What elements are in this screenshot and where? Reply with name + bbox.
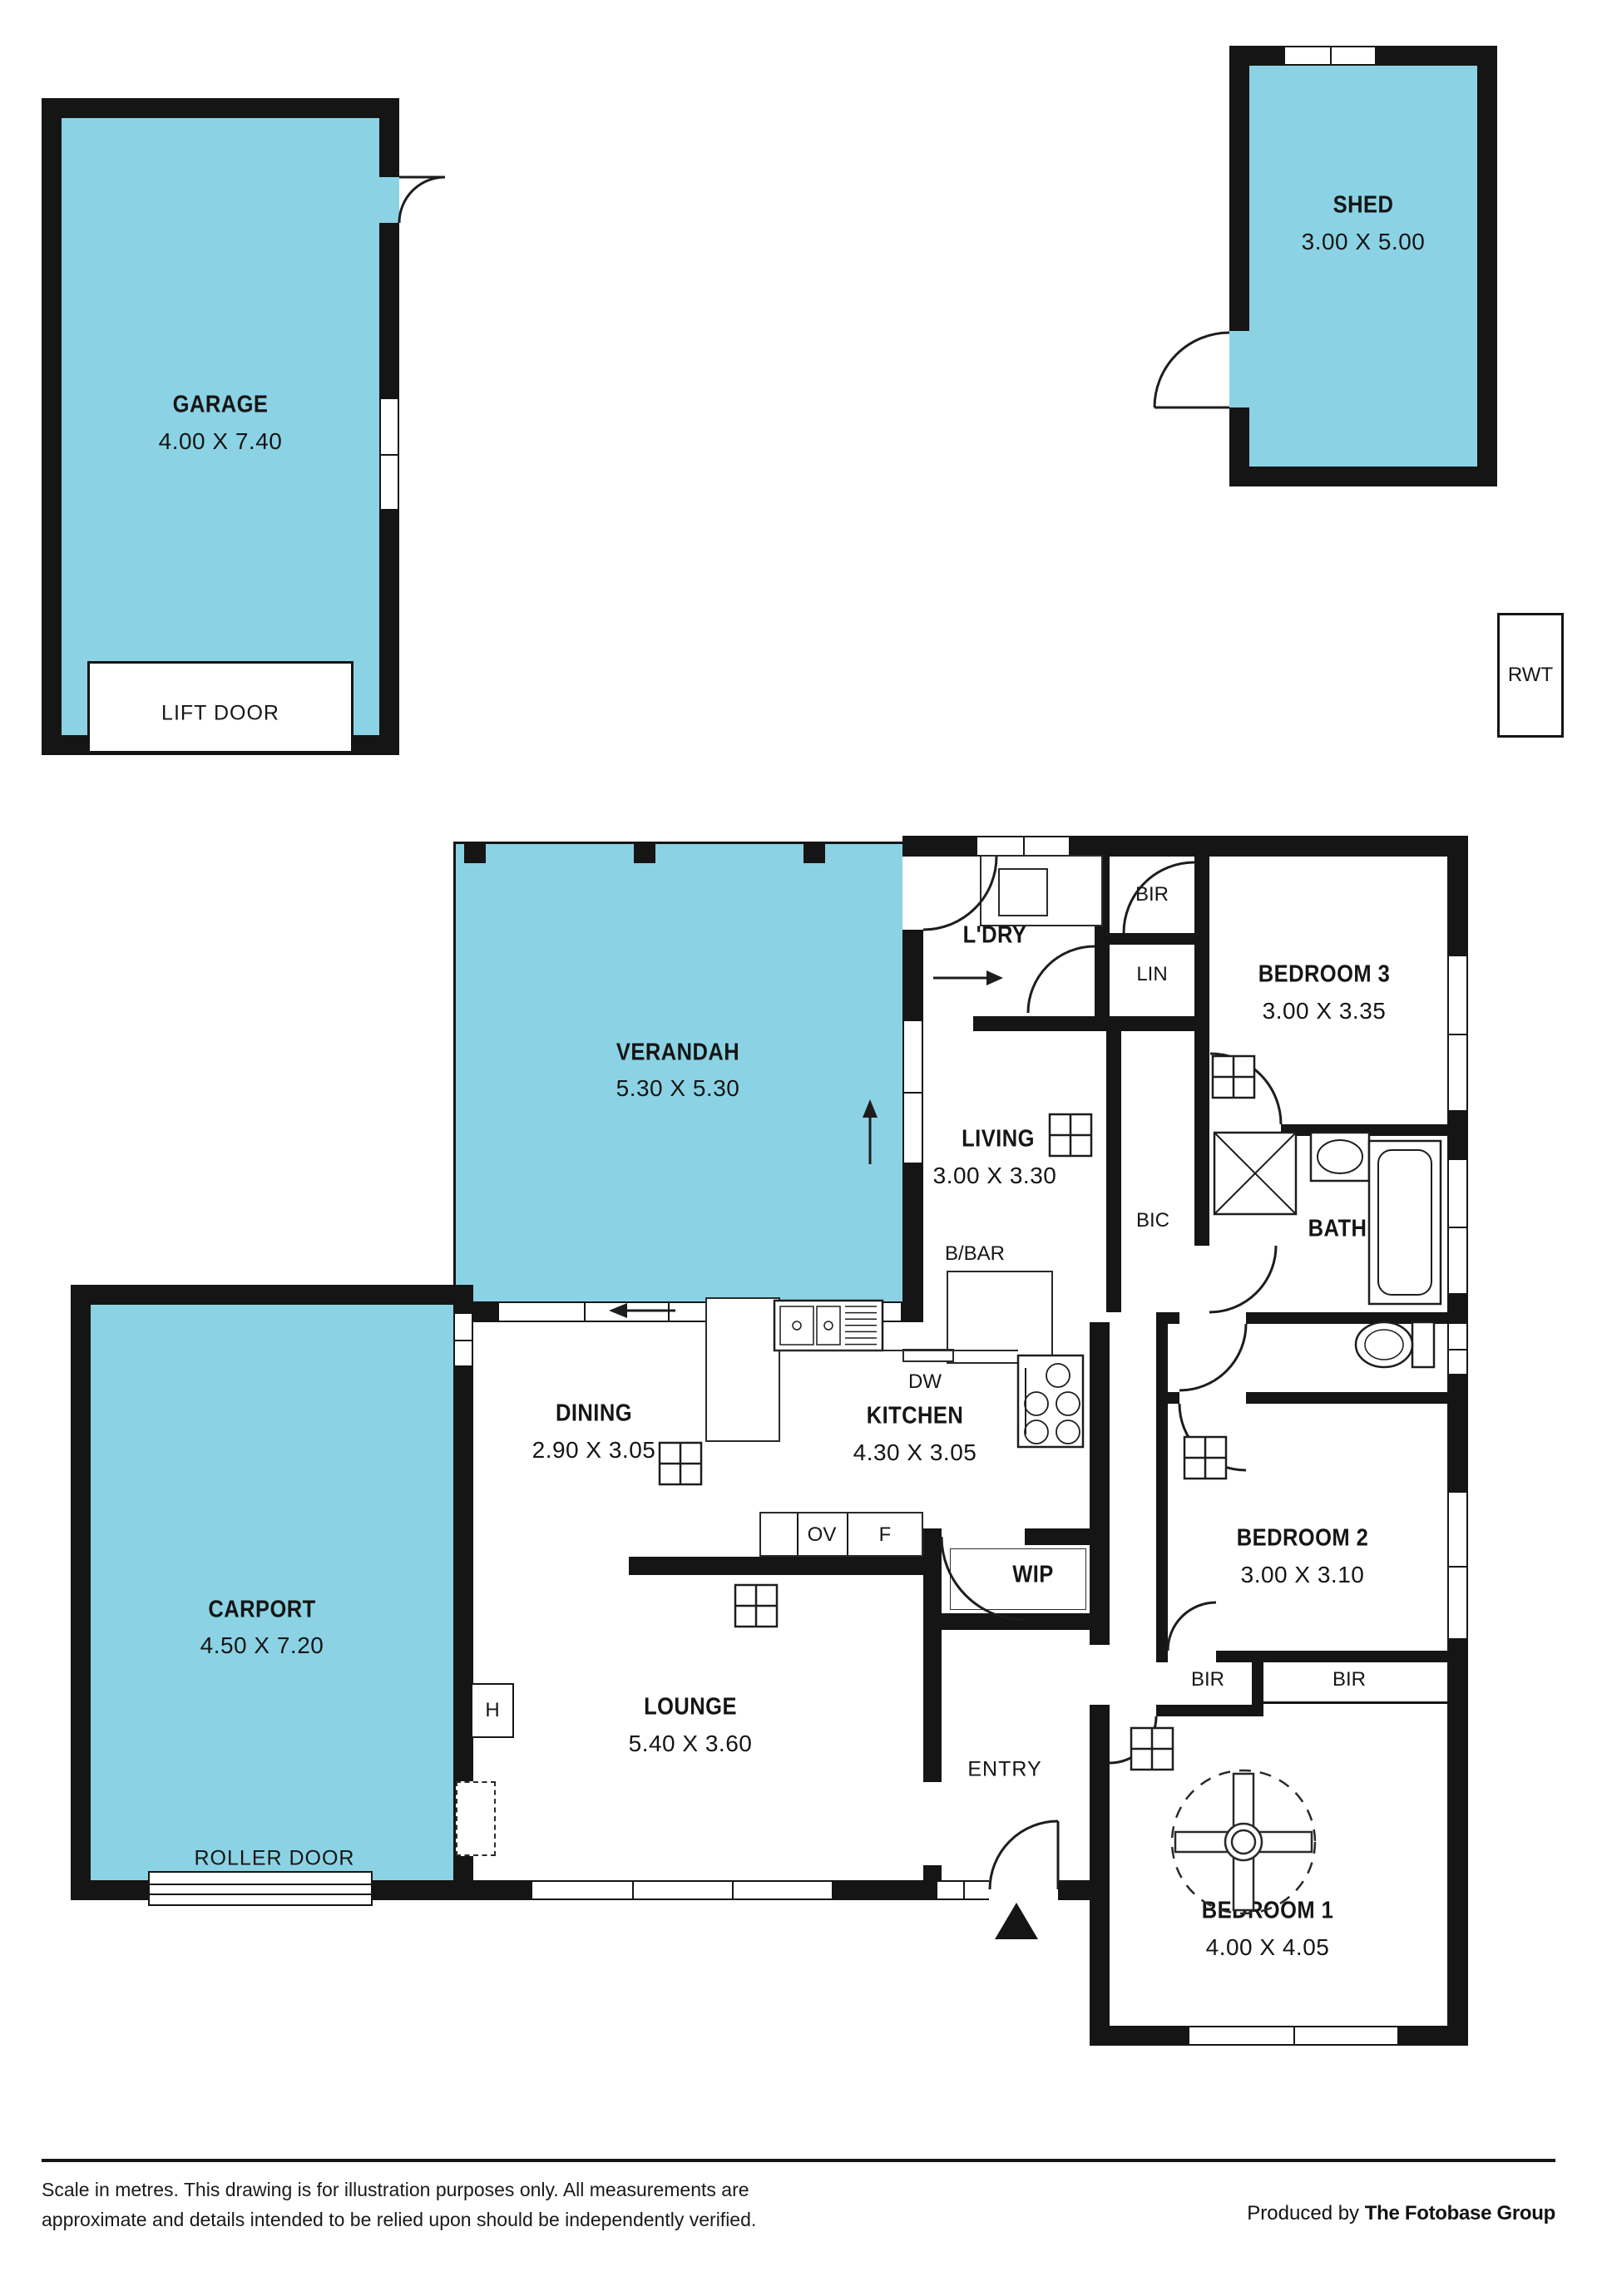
basin-icon: [1311, 1133, 1369, 1181]
garage-label: GARAGE: [173, 392, 269, 419]
wip-label: WIP: [1012, 1562, 1054, 1589]
heater-label: H: [485, 1699, 499, 1722]
bedroom3-door-arc: [1210, 1054, 1281, 1124]
window-mullion: [584, 1303, 586, 1321]
wall: [1477, 46, 1497, 486]
wall: [1106, 1031, 1121, 1312]
bir-right-label: BIR: [1332, 1668, 1366, 1691]
window-mullion: [1449, 1566, 1466, 1568]
wall: [923, 1528, 942, 1545]
wall: [973, 1016, 1110, 1031]
window: [379, 399, 399, 509]
wall: [1246, 1312, 1447, 1324]
shed-label: SHED: [1333, 192, 1394, 220]
wall: [1090, 1322, 1110, 1645]
window-mullion: [1330, 47, 1332, 64]
disclaimer-line1: Scale in metres. This drawing is for ill…: [42, 2179, 749, 2201]
bedroom3-vent-icon: [1213, 1056, 1254, 1098]
window: [532, 1880, 832, 1900]
wall: [1229, 46, 1249, 331]
wall: [1194, 857, 1209, 1246]
window: [1189, 2026, 1397, 2046]
garage-dims: 4.00 X 7.40: [159, 428, 283, 455]
window: [797, 1301, 901, 1322]
dining-label: DINING: [556, 1400, 632, 1428]
bic-label: BIC: [1136, 1209, 1169, 1232]
front-door-arc: [990, 1821, 1058, 1889]
dining-dims: 2.90 X 3.05: [532, 1437, 656, 1464]
kitchen-label: KITCHEN: [867, 1403, 964, 1430]
window-mullion: [904, 1092, 922, 1094]
wall: [379, 509, 399, 755]
wall: [71, 1880, 148, 1900]
window-mullion: [632, 1882, 634, 1899]
bedroom2-label: BEDROOM 2: [1237, 1525, 1369, 1553]
wall: [902, 842, 923, 857]
roller-door-panel: [148, 1871, 373, 1906]
fireplace-niche: [456, 1781, 496, 1856]
window: [937, 1880, 989, 1900]
cooktop-icon: [1018, 1355, 1083, 1447]
window-mullion: [455, 1340, 472, 1341]
fridge-label: F: [879, 1523, 892, 1547]
kitchen-dims: 4.30 X 3.05: [853, 1439, 977, 1466]
verandah-edge-top: [453, 842, 904, 844]
wall: [42, 98, 399, 118]
lift-door-label: LIFT DOOR: [161, 702, 279, 726]
oven-label: OV: [808, 1523, 837, 1547]
verandah-post: [634, 842, 655, 863]
laundry-direction-arrow-head: [986, 970, 1003, 985]
wall: [923, 1630, 942, 1782]
producer-credit: Produced by The Fotobase Group: [1247, 2202, 1555, 2225]
linen-door-arc: [1028, 946, 1095, 1013]
window: [453, 1314, 473, 1365]
living-label: LIVING: [962, 1126, 1035, 1153]
window: [1447, 1493, 1468, 1638]
ceiling-fan-icon: [1172, 1770, 1315, 1913]
garage-area: [42, 98, 399, 755]
wall: [629, 1557, 923, 1575]
carport-label: CARPORT: [208, 1597, 315, 1624]
verandah-dims: 5.30 X 5.30: [616, 1075, 740, 1102]
wall: [1156, 1651, 1168, 1662]
wall: [71, 1285, 473, 1305]
bir-left-label: BIR: [1191, 1668, 1224, 1691]
bir-front-line: [1263, 1701, 1447, 1704]
window: [1447, 956, 1468, 1110]
wall: [71, 1285, 91, 1900]
wall: [1156, 1312, 1168, 1651]
window-mullion: [1449, 1034, 1466, 1035]
bathtub-icon: [1369, 1141, 1441, 1304]
entry-marker: [995, 1903, 1038, 1939]
wall: [901, 1301, 923, 1322]
wall: [902, 930, 923, 1021]
window: [1447, 1160, 1468, 1293]
window-mullion: [732, 1882, 734, 1899]
dining-vent-icon: [660, 1443, 701, 1484]
carport-area: [71, 1285, 453, 1900]
dining-bench: [705, 1297, 780, 1442]
living-dims: 3.00 X 3.30: [933, 1163, 1057, 1189]
verandah-label: VERANDAH: [616, 1039, 739, 1067]
wall: [1246, 1392, 1447, 1404]
bedroom1-dims: 4.00 X 4.05: [1206, 1934, 1330, 1961]
roller-door-slat-line: [150, 1884, 371, 1885]
carport-dims: 4.50 X 7.20: [200, 1632, 324, 1659]
appliance-cabinets: [759, 1512, 923, 1557]
wall: [1229, 407, 1249, 486]
wall: [379, 98, 399, 177]
floor-plan: GARAGE4.00 X 7.40LIFT DOORSHED3.00 X 5.0…: [0, 0, 1597, 2296]
bedroom1-vent-icon: [1131, 1728, 1173, 1770]
wall: [902, 1163, 923, 1301]
dishwasher: [902, 1349, 954, 1362]
shed-dims: 3.00 X 5.00: [1302, 229, 1426, 255]
wall: [1281, 1124, 1447, 1136]
living-vent-icon: [1050, 1114, 1091, 1156]
wall: [1110, 933, 1194, 945]
bath-door-arc: [1209, 1246, 1276, 1312]
wall: [923, 1865, 942, 1880]
credit-prefix: Produced by: [1247, 2202, 1364, 2224]
lounge-label: LOUNGE: [644, 1694, 737, 1721]
bedroom1-door-arc: [1110, 1716, 1156, 1763]
roller-door-label: ROLLER DOOR: [195, 1847, 355, 1871]
bedroom3-dims: 3.00 X 3.35: [1263, 998, 1387, 1025]
bir-closet-door-arc: [1168, 1602, 1216, 1651]
wall: [379, 223, 399, 399]
footer-divider: [42, 2159, 1555, 2162]
wall: [1156, 1705, 1263, 1716]
rwt-label: RWT: [1508, 664, 1553, 687]
lounge-dims: 5.40 X 3.60: [629, 1731, 753, 1757]
laundry-trough-bowl: [998, 868, 1048, 916]
window: [977, 836, 1069, 857]
window-mullion: [1293, 2027, 1295, 2044]
wall: [832, 1880, 937, 1900]
cabinet-divider-1: [797, 1513, 798, 1555]
verandah-edge-left: [453, 842, 456, 1303]
credit-brand: The Fotobase Group: [1365, 2202, 1555, 2224]
verandah-post: [803, 842, 825, 863]
shed-door-arc: [1154, 333, 1229, 407]
dishwasher-label: DW: [908, 1370, 942, 1394]
wall: [1397, 2026, 1468, 2046]
bath-label: BATH: [1308, 1216, 1367, 1243]
wall: [1216, 1651, 1447, 1662]
window: [1285, 46, 1375, 66]
wall: [1090, 1705, 1110, 2026]
verandah-area: [453, 842, 902, 1301]
wall: [923, 1613, 1110, 1630]
wall: [373, 1880, 473, 1900]
wall: [1090, 2026, 1189, 2046]
bir-top-label: BIR: [1135, 883, 1169, 906]
window-mullion: [1023, 837, 1025, 855]
bedroom2-dims: 3.00 X 3.10: [1241, 1562, 1365, 1588]
wall: [1110, 1016, 1194, 1031]
window-mullion: [963, 1882, 965, 1899]
shed-area: [1229, 46, 1497, 486]
bedroom2-vent-icon: [1184, 1437, 1226, 1479]
shower-icon: [1214, 1133, 1296, 1214]
window-mullion: [1449, 1349, 1466, 1350]
bedroom1-label: BEDROOM 1: [1202, 1898, 1334, 1925]
window-mullion: [1449, 1227, 1466, 1228]
verandah-post: [464, 842, 486, 863]
bedroom2-door-arc: [1179, 1404, 1246, 1470]
linen-label: LIN: [1136, 963, 1167, 986]
bedroom3-label: BEDROOM 3: [1258, 961, 1391, 989]
roller-door-slat-line: [150, 1894, 371, 1895]
wc-door-arc: [1179, 1324, 1246, 1390]
disclaimer-line2: approximate and details intended to be r…: [42, 2209, 756, 2231]
window: [1447, 1324, 1468, 1374]
window-mullion: [381, 454, 398, 456]
lounge-vent-icon: [735, 1585, 777, 1627]
garage-door-arc: [399, 177, 445, 223]
wall: [1025, 1528, 1090, 1545]
wall: [1229, 467, 1497, 486]
window: [902, 1021, 923, 1163]
window-mullion: [849, 1303, 851, 1321]
breakfast-bar-counter: [947, 1271, 1053, 1364]
entry-label: ENTRY: [967, 1758, 1041, 1782]
laundry-label: L'DRY: [963, 922, 1027, 950]
window-mullion: [668, 1303, 670, 1321]
toilet-icon: [1356, 1322, 1434, 1367]
cabinet-divider-2: [847, 1513, 848, 1555]
bbar-label: B/BAR: [945, 1242, 1005, 1266]
wall: [42, 98, 62, 755]
